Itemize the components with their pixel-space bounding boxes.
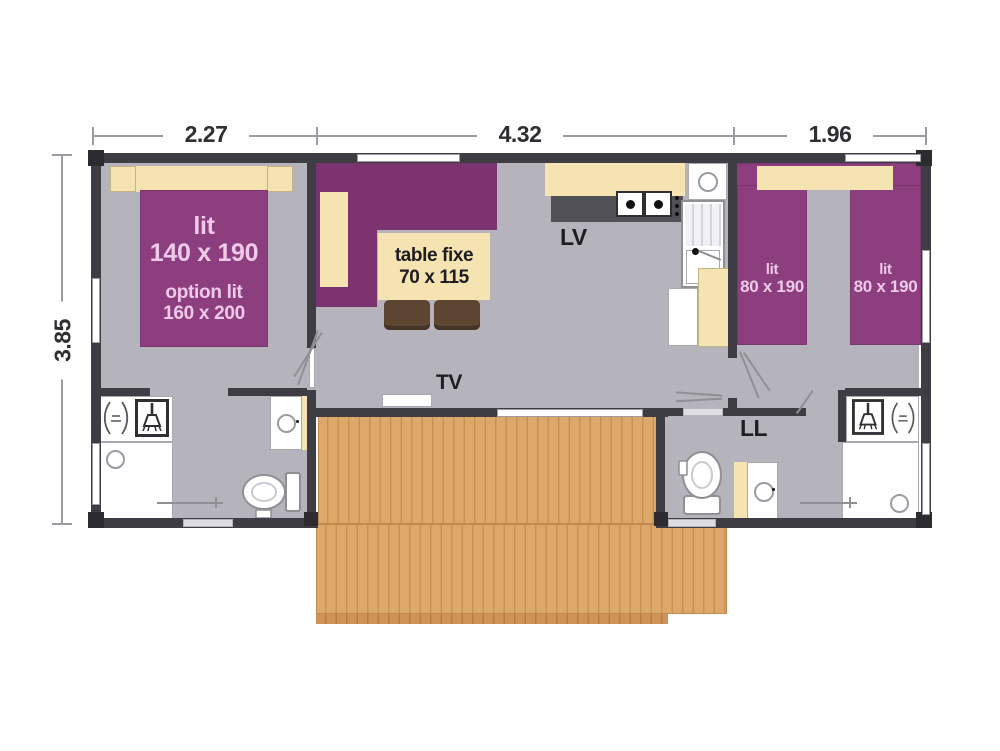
window-right-bathroom <box>922 443 930 515</box>
hob-burner-left <box>616 191 644 217</box>
appliance-circle <box>698 172 718 192</box>
corner-post-left-wing <box>304 512 318 526</box>
door-tick-bath-left <box>215 497 217 508</box>
dim-tick-left-bottom <box>52 523 72 525</box>
window-left-master <box>92 278 100 343</box>
kitchen-tall-appliance <box>668 288 698 346</box>
window-left-bathroom <box>92 443 100 505</box>
sofa-side-shelf <box>320 192 348 287</box>
window-top-bedroom <box>845 154 921 162</box>
door-bottom-left <box>183 519 233 527</box>
hob-burner-right <box>644 191 672 217</box>
nightstand-left <box>110 166 136 192</box>
basin-circle-left <box>277 414 296 433</box>
washer-cabinet <box>734 462 747 520</box>
sink-drainboard <box>685 204 721 246</box>
floor-plan: lit 140 x 190 option lit 160 x 200 table… <box>0 0 1000 751</box>
wall-shower-top <box>845 388 929 396</box>
hob-knob-1 <box>675 196 679 200</box>
table-size: 70 x 115 <box>399 267 469 289</box>
master-bed-option-type: option lit <box>165 283 242 304</box>
wall-bathroom-divider <box>838 390 846 442</box>
kitchen-appliance <box>688 163 727 200</box>
door-swing-bath-left <box>157 502 223 504</box>
master-bed-type: lit <box>193 213 214 240</box>
master-bed-size: 140 x 190 <box>150 240 259 267</box>
master-headboard <box>113 166 293 192</box>
shower-tray-right <box>842 442 919 520</box>
shower-icon-left <box>135 399 169 437</box>
tv-unit <box>382 394 432 407</box>
door-bottom-right <box>668 519 716 527</box>
water-spray-icon-left <box>99 399 133 437</box>
window-top-living <box>357 154 460 162</box>
twin-bed2-type: lit <box>879 262 891 278</box>
door-opening-wc <box>683 408 723 416</box>
master-bed: lit 140 x 190 option lit 160 x 200 <box>140 190 268 347</box>
drain-circle-right <box>890 494 909 513</box>
dining-table: table fixe 70 x 115 <box>378 233 490 300</box>
wall-wc-left <box>656 416 665 518</box>
hob-knob-3 <box>675 212 679 216</box>
dim-tick-1 <box>92 127 94 145</box>
deck-lower <box>316 524 727 614</box>
wall-exterior-top <box>91 153 931 163</box>
wall-kitchen-bedroom <box>728 163 737 345</box>
dim-tick-left-top <box>52 154 72 156</box>
wall-hall-stub-top <box>728 345 737 358</box>
dim-top-3: 1.96 <box>787 121 873 148</box>
washing-machine-label: LL <box>740 415 780 442</box>
twin-bed1-type: lit <box>766 262 778 278</box>
stool-left <box>384 300 430 330</box>
corner-post-top-left <box>88 150 104 166</box>
shower-icon-right <box>852 398 884 436</box>
drain-circle-left <box>106 450 125 469</box>
dim-tick-3 <box>733 127 735 145</box>
twin-bed-right-label: lit 80 x 190 <box>850 262 921 297</box>
twin-bed1-size: 80 x 190 <box>740 278 804 296</box>
toilet-icon-left <box>240 468 304 520</box>
dim-left: 3.85 <box>50 302 77 380</box>
door-opening-master-bath <box>150 388 228 396</box>
table-type: table fixe <box>395 245 473 267</box>
corner-post-right-wing <box>654 512 668 526</box>
twin-bed-left-label: lit 80 x 190 <box>737 262 807 297</box>
washing-machine <box>747 462 778 520</box>
nightstand-right <box>267 166 293 192</box>
drum-circle <box>754 482 774 502</box>
door-tick-bath-right <box>849 497 851 508</box>
deck-step-edge <box>316 614 668 624</box>
hob-knob-2 <box>675 204 679 208</box>
master-bed-option-size: 160 x 200 <box>163 304 245 325</box>
washbasin-left <box>270 396 302 450</box>
dim-tick-2 <box>316 127 318 145</box>
stool-right <box>434 300 480 330</box>
basin-tap-dot <box>296 420 299 423</box>
dim-tick-4 <box>925 127 927 145</box>
dim-top-1: 2.27 <box>163 121 249 148</box>
twin-bed2-size: 80 x 190 <box>854 278 918 296</box>
water-spray-icon-right <box>887 399 919 437</box>
twin-headboard <box>757 166 893 190</box>
shower-tray-left <box>97 442 173 520</box>
window-right-bedroom <box>922 250 930 343</box>
tv-label: TV <box>436 371 480 395</box>
toilet-icon-right <box>678 448 726 520</box>
kitchen-cupboard <box>698 268 732 347</box>
bay-window-living <box>497 409 643 417</box>
corner-post-bottom-left <box>88 512 104 528</box>
dim-top-2: 4.32 <box>477 121 563 148</box>
washer-dot <box>772 488 775 491</box>
deck-upper <box>318 412 660 524</box>
dishwasher-label: LV <box>560 224 608 251</box>
